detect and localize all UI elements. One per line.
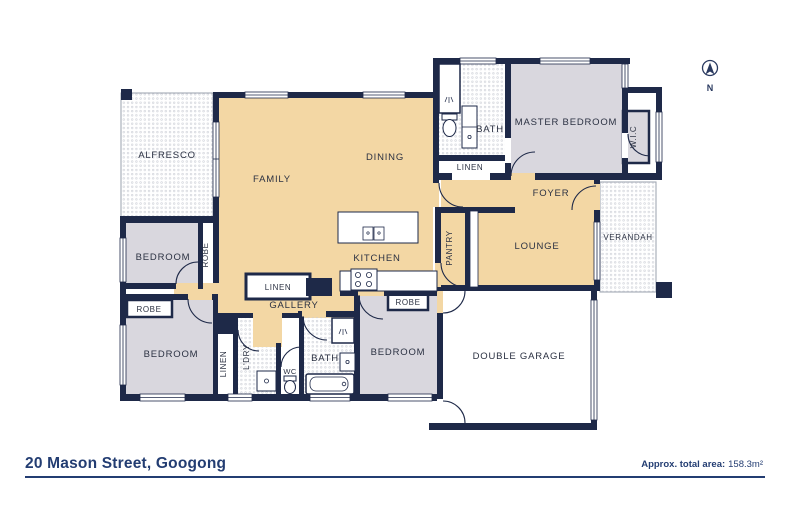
footer-divider: [25, 476, 765, 478]
page-title: 20 Mason Street, Googong: [25, 455, 226, 472]
bath-main-label: BATH: [311, 353, 339, 364]
alfresco-label: ALFRESCO: [138, 150, 196, 161]
linen-low-label: LINEN: [219, 351, 228, 378]
linen-mid-label: LINEN: [265, 283, 292, 292]
garage-door: [591, 300, 597, 420]
total-area: Approx. total area:158.3m²: [641, 459, 763, 470]
ensuite-shower-icon: [439, 64, 460, 113]
floor-plan-page: ALFRESCO FAMILY DINING KITCHEN BATH LINE…: [0, 0, 790, 527]
wic-label: W.I.C: [629, 126, 638, 149]
garage-label: DOUBLE GARAGE: [473, 351, 566, 362]
robe-2-label: ROBE: [136, 305, 161, 314]
bedroom-2-label: BEDROOM: [144, 349, 199, 360]
foyer-label: FOYER: [533, 188, 570, 199]
sliding-door: [213, 122, 219, 197]
bedroom-3-label: BEDROOM: [371, 347, 426, 358]
north-arrow-icon: [706, 63, 715, 75]
footer: 20 Mason Street, Googong Approx. total a…: [25, 455, 765, 478]
robe-1-label: ROBE: [201, 242, 210, 267]
gallery-label: GALLERY: [269, 300, 318, 311]
wc-label: WC: [283, 367, 296, 376]
robe-3-label: ROBE: [395, 298, 420, 307]
lounge-label: LOUNGE: [515, 241, 560, 252]
kitchen-label: KITCHEN: [353, 253, 400, 264]
dining-label: DINING: [366, 152, 404, 163]
linen-top-label: LINEN: [457, 163, 484, 172]
laundry-label: L'DRY: [242, 344, 251, 370]
pantry-label: PANTRY: [445, 230, 454, 265]
pantry-shelf-icon: [470, 211, 478, 287]
floor-plan: ALFRESCO FAMILY DINING KITCHEN BATH LINE…: [0, 0, 790, 527]
family-label: FAMILY: [253, 174, 291, 185]
bedroom-1-label: BEDROOM: [136, 252, 191, 263]
north-compass: N: [703, 61, 718, 94]
north-letter: N: [707, 83, 714, 93]
verandah-label: VERANDAH: [603, 233, 652, 242]
ensuite-bath-label: BATH: [476, 124, 504, 135]
cooktop-icon: [351, 269, 377, 290]
master-bedroom-label: MASTER BEDROOM: [515, 117, 618, 128]
hall-notch: [253, 313, 282, 347]
